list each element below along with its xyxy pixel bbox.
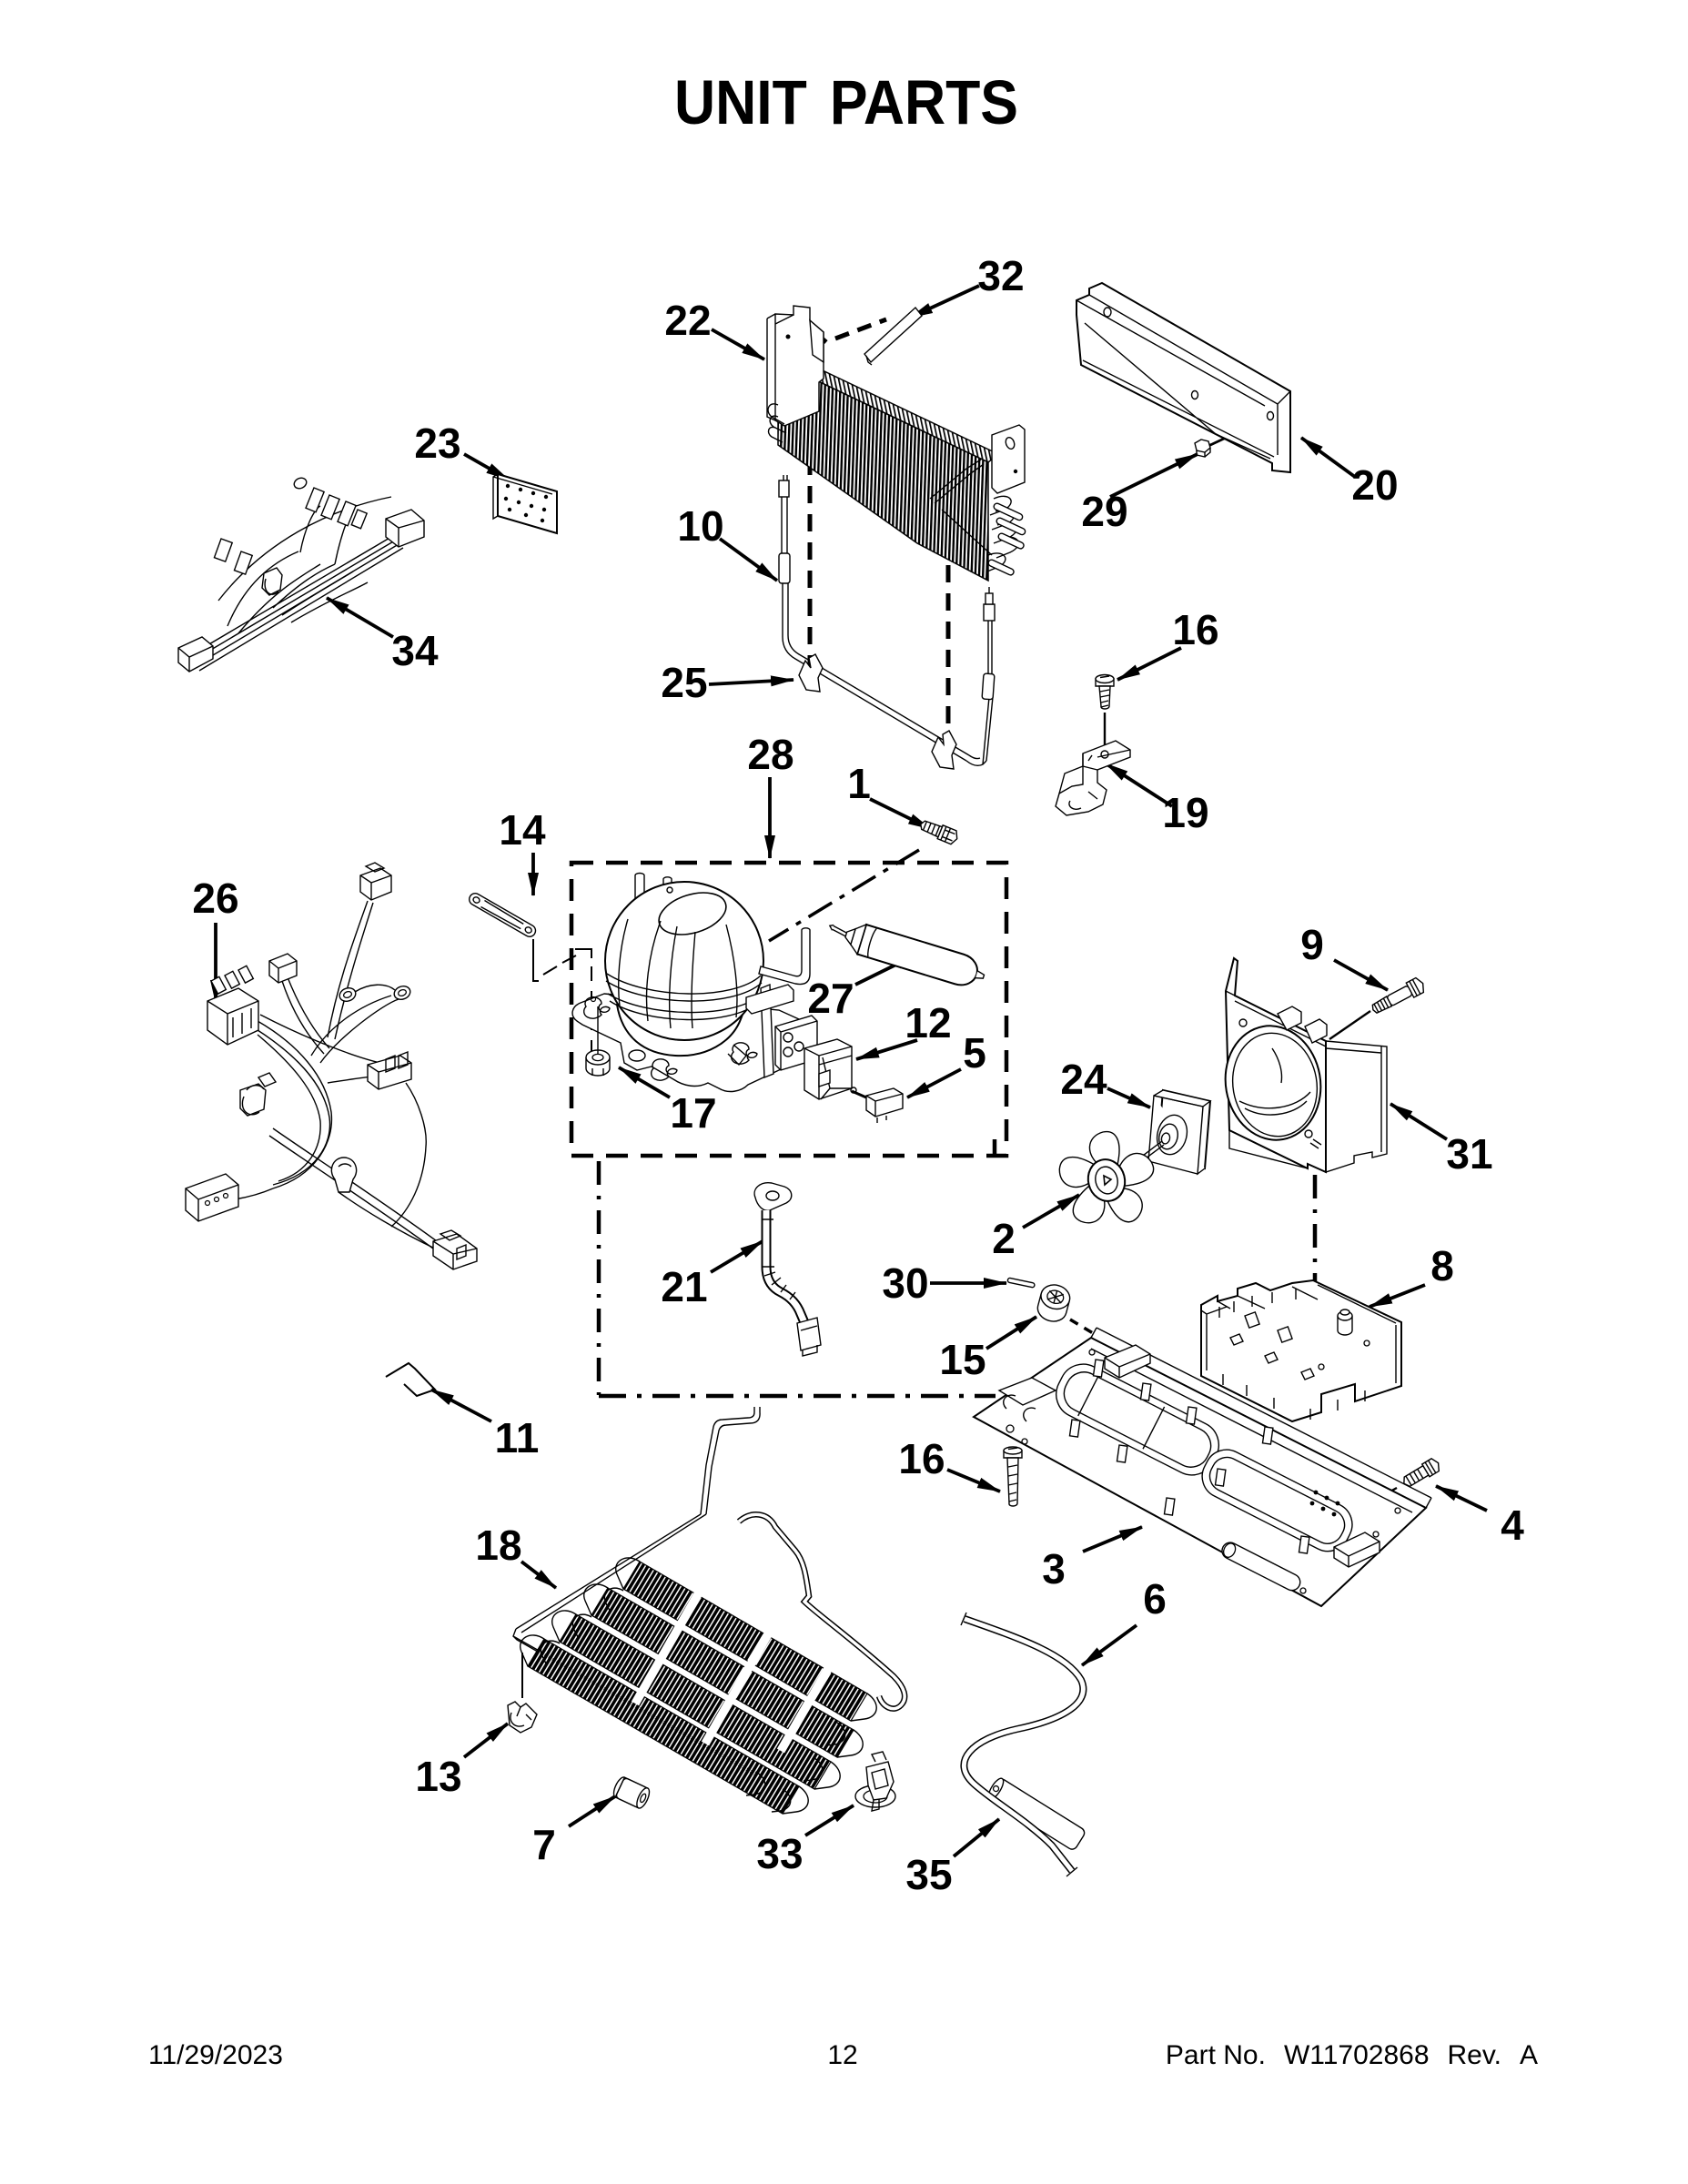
svg-text:11/29/2023: 11/29/2023 bbox=[148, 2040, 283, 2070]
svg-text:20: 20 bbox=[1351, 461, 1398, 509]
svg-text:1: 1 bbox=[847, 760, 871, 807]
svg-text:15: 15 bbox=[939, 1336, 986, 1383]
svg-text:12: 12 bbox=[827, 2040, 857, 2070]
svg-text:3: 3 bbox=[1042, 1545, 1066, 1592]
svg-text:4: 4 bbox=[1501, 1501, 1524, 1549]
svg-text:8: 8 bbox=[1430, 1242, 1454, 1289]
svg-text:10: 10 bbox=[677, 502, 723, 550]
svg-text:24: 24 bbox=[1060, 1056, 1107, 1103]
svg-text:27: 27 bbox=[807, 975, 854, 1022]
svg-text:2: 2 bbox=[992, 1215, 1016, 1262]
svg-text:19: 19 bbox=[1162, 789, 1208, 836]
svg-text:18: 18 bbox=[475, 1522, 521, 1569]
svg-text:9: 9 bbox=[1300, 921, 1324, 968]
svg-text:16: 16 bbox=[1172, 606, 1218, 653]
svg-text:30: 30 bbox=[882, 1259, 928, 1307]
svg-text:17: 17 bbox=[670, 1089, 716, 1137]
svg-text:33: 33 bbox=[756, 1830, 803, 1877]
svg-text:26: 26 bbox=[192, 875, 238, 922]
svg-text:25: 25 bbox=[661, 659, 707, 706]
svg-text:16: 16 bbox=[898, 1435, 945, 1482]
svg-text:21: 21 bbox=[661, 1263, 707, 1310]
svg-text:5: 5 bbox=[963, 1029, 986, 1077]
svg-text:35: 35 bbox=[905, 1851, 952, 1898]
svg-text:29: 29 bbox=[1081, 488, 1127, 535]
svg-text:11: 11 bbox=[495, 1414, 540, 1461]
svg-text:28: 28 bbox=[747, 731, 793, 778]
svg-text:Part No. W11702868 Rev. A: Part No. W11702868 Rev. A bbox=[1166, 2040, 1538, 2070]
svg-text:6: 6 bbox=[1143, 1575, 1167, 1623]
svg-text:32: 32 bbox=[977, 252, 1024, 299]
svg-text:14: 14 bbox=[499, 806, 546, 854]
svg-text:7: 7 bbox=[532, 1821, 556, 1868]
svg-text:22: 22 bbox=[664, 297, 711, 344]
svg-text:34: 34 bbox=[391, 627, 439, 674]
svg-text:12: 12 bbox=[905, 999, 951, 1046]
svg-text:23: 23 bbox=[414, 420, 460, 467]
svg-text:UNIT PARTS: UNIT PARTS bbox=[674, 67, 1018, 137]
svg-text:31: 31 bbox=[1446, 1130, 1492, 1178]
svg-text:13: 13 bbox=[415, 1753, 461, 1800]
